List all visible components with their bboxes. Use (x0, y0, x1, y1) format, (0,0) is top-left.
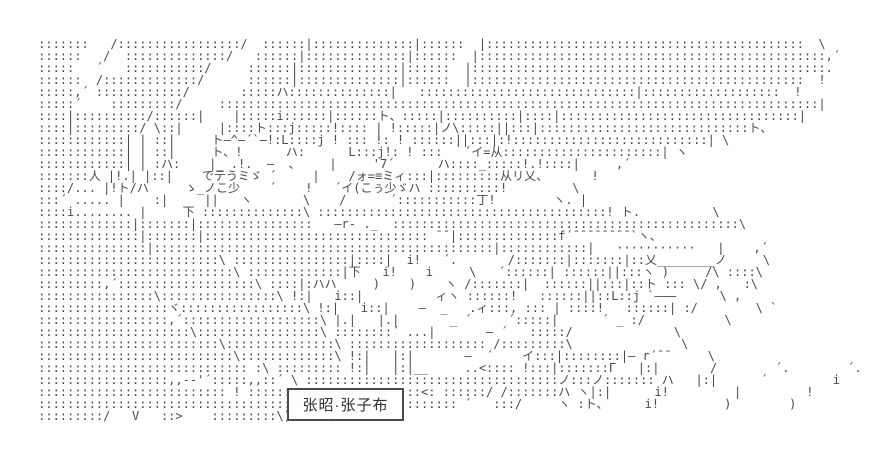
aa-scene: ::::::: /:::::::::::::::::/ ::::::|:::::… (0, 0, 871, 460)
character-nameplate: 张昭·张子布 (287, 388, 404, 421)
ascii-art: ::::::: /:::::::::::::::::/ ::::::|:::::… (2, 38, 871, 434)
character-name: 张昭·张子布 (303, 394, 389, 415)
